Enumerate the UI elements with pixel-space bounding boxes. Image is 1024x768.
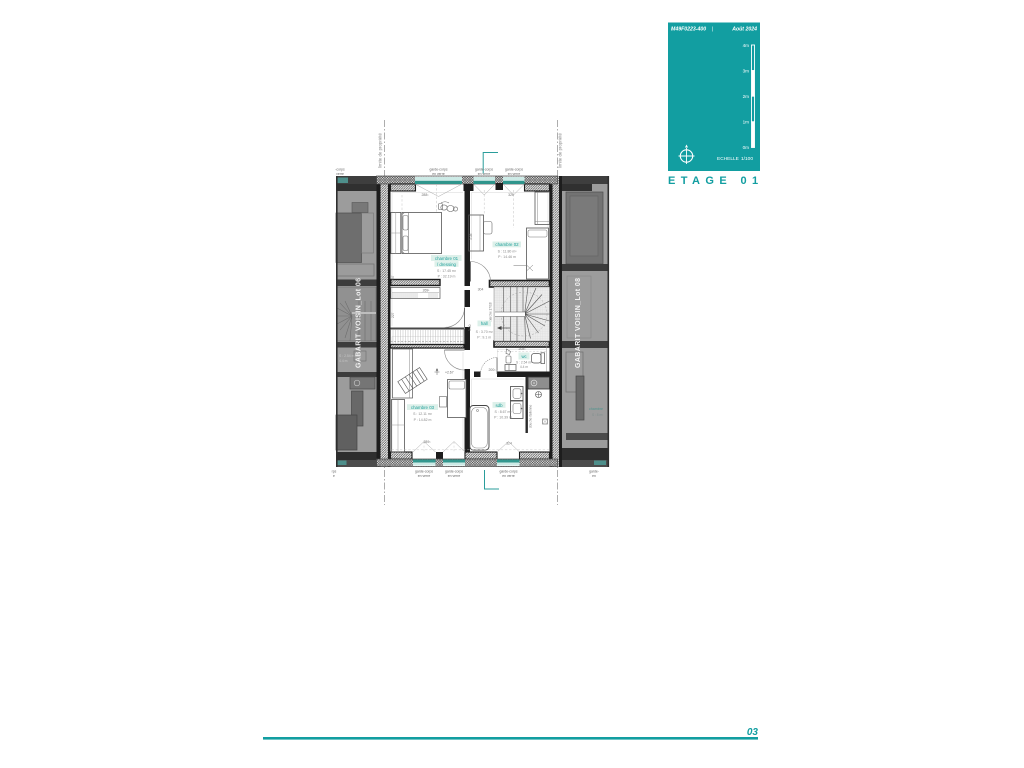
svg-text:3.08: 3.08 — [469, 233, 473, 240]
svg-text:4.4 m: 4.4 m — [520, 365, 528, 369]
svg-text:e: e — [333, 474, 335, 478]
svg-text:chambre: chambre — [589, 407, 603, 411]
svg-text:P : 14.46 m: P : 14.46 m — [498, 255, 516, 259]
svg-text:-corps: -corps — [335, 168, 345, 172]
svg-text:1/100: 1/100 — [741, 156, 753, 162]
svg-text:garde-corps: garde-corps — [475, 168, 493, 172]
svg-text:P : 14.82 m: P : 14.82 m — [414, 418, 432, 422]
svg-text:P : 9.1 m: P : 9.1 m — [477, 336, 491, 340]
svg-text:S : 12.11 m²: S : 12.11 m² — [413, 412, 433, 416]
svg-text:limite de propriété: limite de propriété — [378, 133, 383, 168]
svg-text:S : 8.67 m²: S : 8.67 m² — [494, 410, 512, 414]
svg-text:P : 10.39 m: P : 10.39 m — [494, 416, 512, 420]
svg-text:/ dressing: / dressing — [437, 262, 457, 267]
svg-text:chambre 02: chambre 02 — [495, 242, 519, 247]
svg-text:326: 326 — [508, 193, 514, 197]
svg-text:4m: 4m — [743, 43, 750, 48]
svg-text:garde-corps: garde-corps — [429, 168, 447, 172]
svg-text:limite de propriété: limite de propriété — [558, 133, 563, 168]
svg-text:garde-corps: garde-corps — [415, 470, 433, 474]
svg-text:chambre 01: chambre 01 — [435, 256, 459, 261]
svg-text:4.4 m: 4.4 m — [339, 359, 348, 363]
svg-text:+2.67: +2.67 — [445, 371, 454, 375]
svg-text:227: 227 — [391, 312, 395, 318]
svg-text:en verre: en verre — [478, 172, 491, 176]
svg-text:3.00: 3.00 — [468, 324, 472, 331]
svg-text:208¹: 208¹ — [518, 347, 526, 351]
svg-text:S : 11.80 m²: S : 11.80 m² — [498, 250, 518, 254]
svg-text:en verre: en verre — [502, 474, 515, 478]
svg-text:200¹: 200¹ — [488, 368, 496, 372]
svg-text:chambre 03: chambre 03 — [411, 405, 435, 410]
svg-text:P : 32.19 m: P : 32.19 m — [438, 275, 456, 279]
svg-text:ETAGE 01: ETAGE 01 — [668, 175, 764, 187]
svg-text:garde-corps: garde-corps — [445, 470, 463, 474]
svg-text:2m: 2m — [743, 94, 750, 99]
svg-text:1m: 1m — [743, 120, 750, 125]
svg-text:GABARIT VOISIN_Lot 06: GABARIT VOISIN_Lot 06 — [356, 278, 363, 368]
svg-text:288¹: 288¹ — [421, 193, 429, 197]
svg-text:douche italienne: douche italienne — [529, 405, 533, 428]
svg-text:237: 237 — [391, 275, 395, 281]
svg-text:hall: hall — [481, 321, 488, 326]
svg-text:S : 17.45 m²: S : 17.45 m² — [437, 269, 457, 273]
svg-text:wc: wc — [521, 354, 526, 359]
svg-text:sdb: sdb — [495, 403, 503, 408]
svg-text:marche 17/18: marche 17/18 — [489, 302, 493, 322]
svg-text:269¹: 269¹ — [423, 289, 431, 293]
svg-text:S : 2.54 m²: S : 2.54 m² — [516, 361, 533, 365]
svg-text:en verre: en verre — [418, 474, 431, 478]
svg-text:GABARIT VOISIN_Lot 08: GABARIT VOISIN_Lot 08 — [575, 278, 582, 368]
svg-text:garde-: garde- — [589, 470, 599, 474]
svg-text:rps: rps — [332, 470, 337, 474]
svg-text:Août 2024: Août 2024 — [731, 27, 757, 33]
svg-text:0m: 0m — [743, 145, 750, 150]
svg-text:S : 3.70 m²: S : 3.70 m² — [476, 330, 494, 334]
svg-text:garde-corps: garde-corps — [505, 168, 523, 172]
svg-text:3m: 3m — [743, 68, 750, 73]
svg-text:en verre: en verre — [432, 172, 445, 176]
svg-text:|: | — [712, 27, 713, 33]
svg-text:en: en — [592, 474, 596, 478]
svg-text:en verre: en verre — [448, 474, 461, 478]
svg-text:304: 304 — [478, 288, 484, 292]
svg-text:ECHELLE: ECHELLE — [717, 156, 739, 162]
svg-text:M49F0223-400: M49F0223-400 — [671, 27, 706, 33]
svg-text:garde-corps: garde-corps — [499, 470, 517, 474]
svg-text:verre: verre — [336, 172, 344, 176]
svg-text:03: 03 — [747, 727, 759, 738]
svg-text:en verre: en verre — [508, 172, 521, 176]
svg-text:S : 8 m²: S : 8 m² — [592, 413, 603, 417]
